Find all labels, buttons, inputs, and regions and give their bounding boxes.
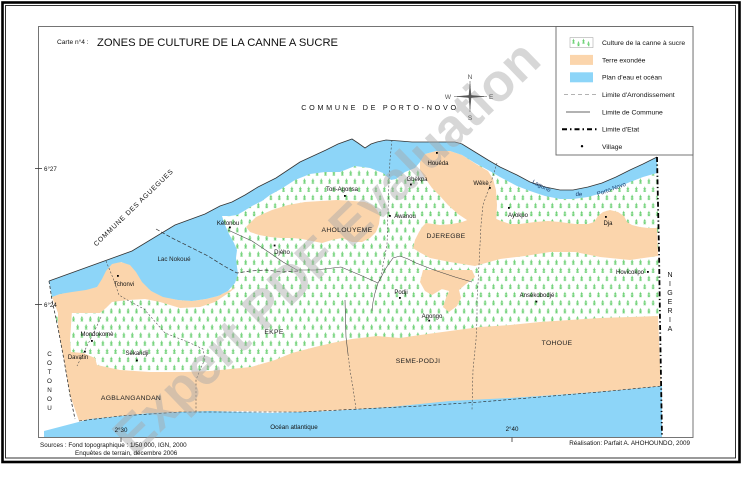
- svg-text:Océan atlantique: Océan atlantique: [270, 424, 318, 431]
- svg-text:U: U: [47, 405, 52, 412]
- svg-text:ZONES DE CULTURE DE LA CANNE A: ZONES DE CULTURE DE LA CANNE A SUCRE: [97, 37, 338, 49]
- svg-text:O: O: [47, 396, 52, 403]
- svg-text:COMMUNE DE PORTO-NOVO: COMMUNE DE PORTO-NOVO: [301, 103, 458, 112]
- svg-text:Davatin: Davatin: [68, 355, 88, 361]
- svg-text:T: T: [48, 369, 52, 376]
- svg-text:Carte n°4 :: Carte n°4 :: [57, 38, 89, 46]
- svg-text:N: N: [667, 272, 672, 279]
- svg-text:Kétonou: Kétonou: [217, 221, 239, 227]
- svg-text:DJEREGBE: DJEREGBE: [426, 233, 465, 240]
- svg-text:E: E: [668, 299, 673, 306]
- svg-text:Lac Nokoué: Lac Nokoué: [157, 256, 191, 263]
- svg-text:Tchonvi: Tchonvi: [114, 282, 134, 288]
- svg-text:Djèho: Djèho: [274, 250, 290, 256]
- svg-text:de: de: [575, 192, 583, 198]
- svg-text:Limite d'Arrondissement: Limite d'Arrondissement: [602, 92, 675, 99]
- svg-text:N: N: [468, 74, 473, 81]
- svg-text:Village: Village: [602, 144, 623, 151]
- svg-text:R: R: [667, 308, 672, 315]
- svg-text:Wêkè: Wêkè: [473, 181, 489, 187]
- svg-text:Plan d'eau et océan: Plan d'eau et océan: [602, 75, 662, 82]
- svg-text:O: O: [47, 378, 52, 385]
- svg-text:O: O: [47, 360, 52, 367]
- svg-text:Limite de Commune: Limite de Commune: [602, 109, 663, 116]
- svg-text:Ansékobodjé: Ansékobodjé: [520, 293, 555, 299]
- svg-text:Houéda: Houéda: [427, 161, 449, 167]
- svg-text:Tori-Agonsa: Tori-Agonsa: [326, 187, 359, 193]
- svg-text:Terre exondée: Terre exondée: [602, 57, 646, 64]
- svg-text:W: W: [445, 94, 452, 101]
- svg-text:N: N: [47, 387, 52, 394]
- svg-text:Ayokpo: Ayokpo: [508, 213, 529, 219]
- svg-text:Hovicokpo: Hovicokpo: [616, 270, 645, 276]
- svg-text:6°24: 6°24: [44, 302, 57, 309]
- svg-text:E: E: [489, 94, 494, 101]
- svg-text:S: S: [468, 115, 473, 122]
- svg-text:6°27: 6°27: [44, 166, 57, 173]
- svg-text:AGBLANGANDAN: AGBLANGANDAN: [101, 395, 161, 402]
- svg-text:Limite d'Etat: Limite d'Etat: [602, 127, 639, 134]
- svg-text:Agongo: Agongo: [422, 314, 443, 320]
- svg-text:2°30: 2°30: [115, 427, 128, 434]
- svg-text:AHOLOUYEME: AHOLOUYEME: [322, 227, 373, 234]
- svg-text:G: G: [667, 290, 672, 297]
- svg-text:C: C: [47, 351, 52, 358]
- svg-text:Sèkandji: Sèkandji: [125, 351, 148, 357]
- svg-text:EKPE: EKPE: [264, 329, 284, 336]
- svg-text:Gbèkpa: Gbèkpa: [406, 177, 428, 183]
- svg-text:Enquêtes de terrain, décembre: Enquêtes de terrain, décembre 2006: [75, 450, 178, 457]
- svg-text:Réalisation: Parfait A. AHOHOU: Réalisation: Parfait A. AHOHOUNDO, 2009: [569, 440, 690, 447]
- svg-text:Culture de la canne à sucre: Culture de la canne à sucre: [602, 40, 685, 47]
- svg-text:2°40: 2°40: [506, 426, 519, 433]
- svg-text:Dja: Dja: [603, 221, 613, 227]
- svg-text:SEME-PODJI: SEME-PODJI: [396, 358, 441, 365]
- svg-text:Sources : Fond topographique :: Sources : Fond topographique : 1/50 000,…: [40, 442, 187, 449]
- svg-text:A: A: [668, 326, 673, 333]
- svg-text:I: I: [669, 281, 671, 288]
- svg-text:Mondokomè: Mondokomè: [80, 332, 114, 338]
- svg-text:TOHOUE: TOHOUE: [542, 340, 573, 347]
- svg-text:I: I: [669, 317, 671, 324]
- svg-text:Podji: Podji: [394, 290, 407, 296]
- svg-text:Awanou: Awanou: [394, 214, 416, 220]
